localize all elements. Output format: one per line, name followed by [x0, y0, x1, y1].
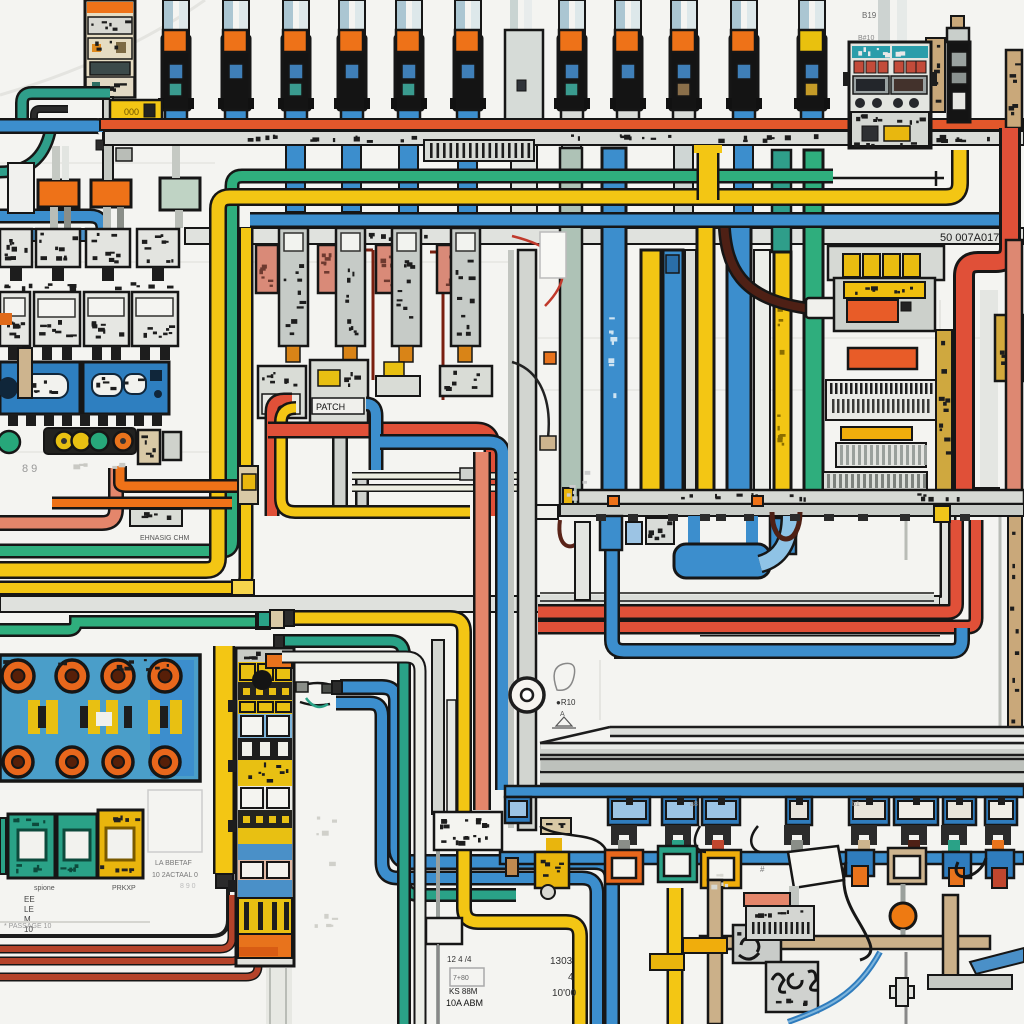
svg-text:7+80: 7+80 [453, 975, 469, 982]
svg-text:1303: 1303 [550, 956, 573, 967]
svg-text:000: 000 [124, 107, 139, 117]
svg-text:●R10: ●R10 [556, 698, 576, 707]
svg-text:KS 88M: KS 88M [449, 987, 478, 996]
svg-text:spione: spione [34, 885, 55, 892]
svg-text:8 9 0: 8 9 0 [180, 883, 196, 890]
svg-text:12 4 /4: 12 4 /4 [447, 955, 472, 964]
svg-text:PRKXP: PRKXP [112, 885, 136, 892]
svg-text:#: # [760, 865, 765, 874]
svg-text:LE: LE [24, 905, 34, 914]
svg-text:EE: EE [24, 895, 35, 904]
svg-text:B19: B19 [862, 11, 877, 20]
svg-text:EHNASIG CHM: EHNASIG CHM [140, 535, 190, 542]
svg-text:a8: a8 [690, 801, 698, 808]
svg-text:10 2ACTAAL 0: 10 2ACTAAL 0 [152, 872, 198, 879]
svg-text:10A ABM: 10A ABM [446, 998, 483, 1008]
svg-text:B#10: B#10 [858, 35, 874, 42]
svg-text:PATCH: PATCH [316, 402, 345, 412]
svg-text:50 007A017: 50 007A017 [940, 232, 999, 244]
svg-text:10'00: 10'00 [552, 988, 577, 999]
svg-text:8 9: 8 9 [22, 463, 37, 475]
svg-text:4: 4 [568, 972, 574, 983]
svg-text:* PASSAGE 10: * PASSAGE 10 [4, 923, 51, 930]
svg-text:LA BBETAF: LA BBETAF [155, 860, 192, 867]
svg-text:b1: b1 [852, 801, 860, 808]
